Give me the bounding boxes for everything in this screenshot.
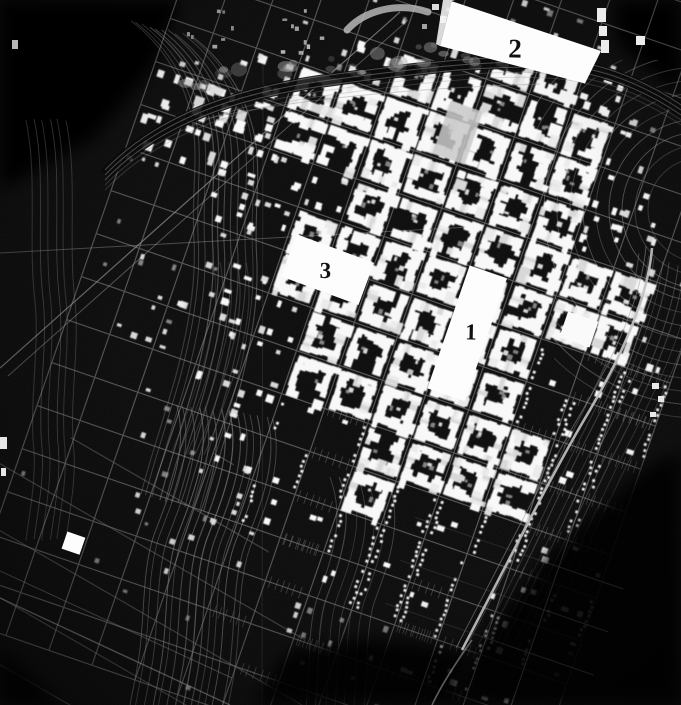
svg-text:3: 3	[319, 258, 331, 283]
svg-text:2: 2	[508, 33, 522, 63]
svg-text:1: 1	[465, 319, 477, 344]
